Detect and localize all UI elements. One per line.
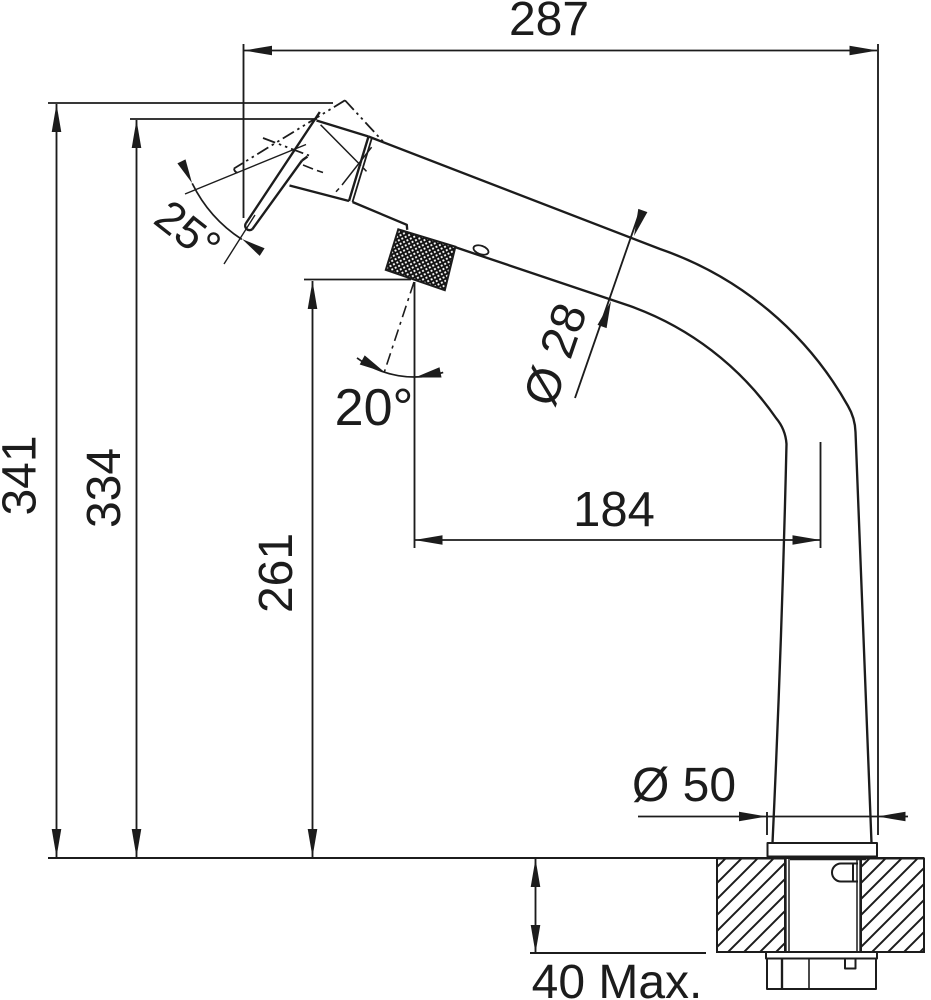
svg-text:184: 184 — [573, 483, 655, 537]
svg-text:40 Max.: 40 Max. — [532, 956, 703, 1000]
svg-text:261: 261 — [250, 533, 303, 613]
svg-text:287: 287 — [509, 0, 589, 46]
svg-text:Ø 50: Ø 50 — [632, 759, 736, 812]
svg-text:341: 341 — [0, 435, 47, 515]
svg-text:334: 334 — [78, 448, 131, 528]
svg-text:20°: 20° — [335, 379, 414, 437]
